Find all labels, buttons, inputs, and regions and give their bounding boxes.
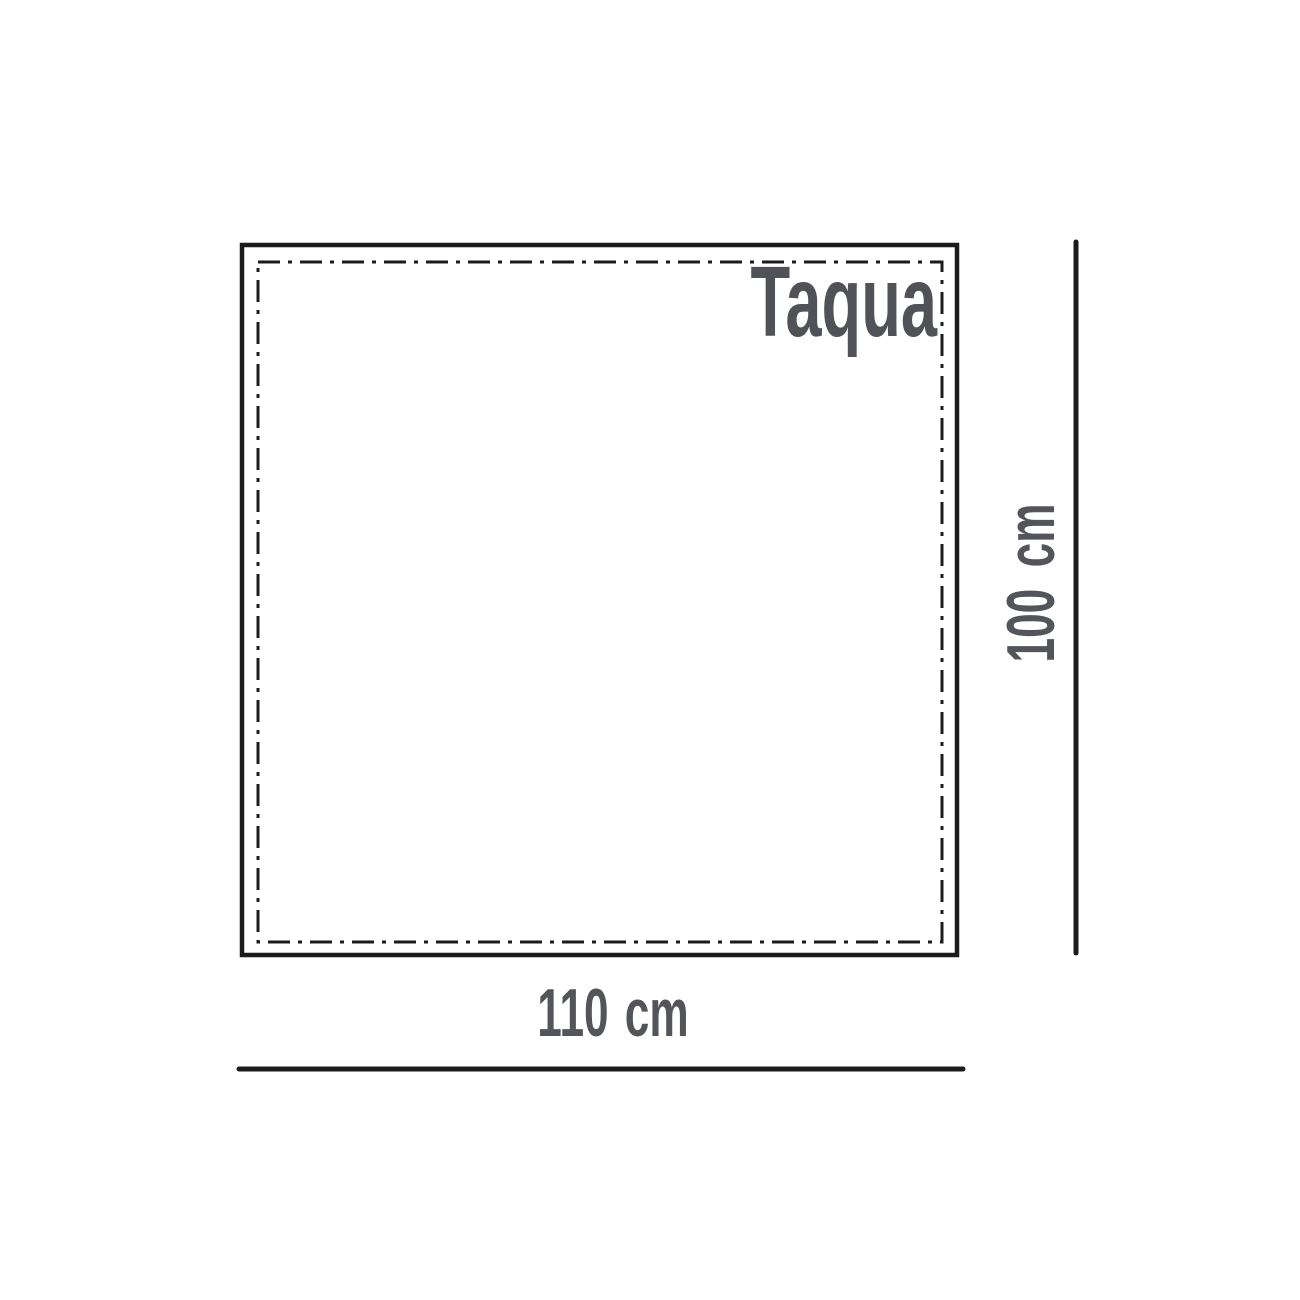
panel-diagram — [0, 0, 1300, 1300]
width-dimension-label: 110 cm — [497, 979, 730, 1047]
height-dimension-text: 100 cm — [997, 503, 1065, 662]
diagram-canvas: Taqua 110 cm 100 cm — [0, 0, 1300, 1300]
width-dimension-text: 110 cm — [537, 979, 688, 1047]
panel-stitch-line — [258, 262, 942, 942]
brand-label: Taqua — [650, 252, 937, 352]
height-dimension-label: 100 cm — [997, 461, 1065, 706]
brand-label-text: Taqua — [750, 252, 937, 352]
